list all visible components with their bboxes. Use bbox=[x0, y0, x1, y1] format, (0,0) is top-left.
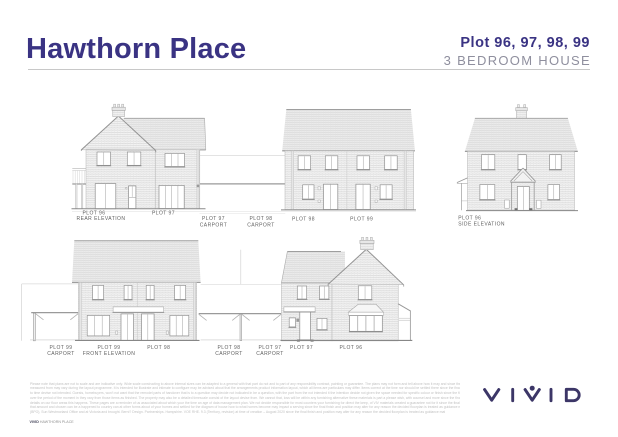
svg-text:CARPORT: CARPORT bbox=[256, 351, 284, 357]
svg-text:PLOT 98: PLOT 98 bbox=[147, 345, 170, 351]
svg-text:SIDE ELEVATION: SIDE ELEVATION bbox=[458, 221, 505, 227]
svg-text:CARPORT: CARPORT bbox=[47, 351, 75, 357]
svg-text:REAR ELEVATION: REAR ELEVATION bbox=[77, 216, 126, 222]
svg-text:PLOT 97: PLOT 97 bbox=[290, 345, 313, 351]
svg-text:PLOT 98: PLOT 98 bbox=[249, 216, 272, 222]
svg-text:PLOT 98: PLOT 98 bbox=[217, 345, 240, 351]
svg-text:PLOT 99: PLOT 99 bbox=[350, 216, 373, 222]
svg-text:CARPORT: CARPORT bbox=[200, 222, 228, 228]
svg-text:PLOT 96: PLOT 96 bbox=[458, 215, 481, 221]
svg-text:PLOT 99: PLOT 99 bbox=[97, 345, 120, 351]
svg-text:PLOT 97: PLOT 97 bbox=[258, 345, 281, 351]
svg-text:PLOT 97: PLOT 97 bbox=[202, 216, 225, 222]
svg-text:PLOT 97: PLOT 97 bbox=[152, 210, 175, 216]
svg-text:FRONT ELEVATION: FRONT ELEVATION bbox=[83, 351, 136, 357]
svg-text:CARPORT: CARPORT bbox=[247, 222, 275, 228]
svg-text:PLOT 99: PLOT 99 bbox=[49, 345, 72, 351]
svg-text:PLOT 96: PLOT 96 bbox=[339, 345, 362, 351]
svg-text:PLOT 98: PLOT 98 bbox=[292, 216, 315, 222]
svg-text:CARPORT: CARPORT bbox=[215, 351, 243, 357]
